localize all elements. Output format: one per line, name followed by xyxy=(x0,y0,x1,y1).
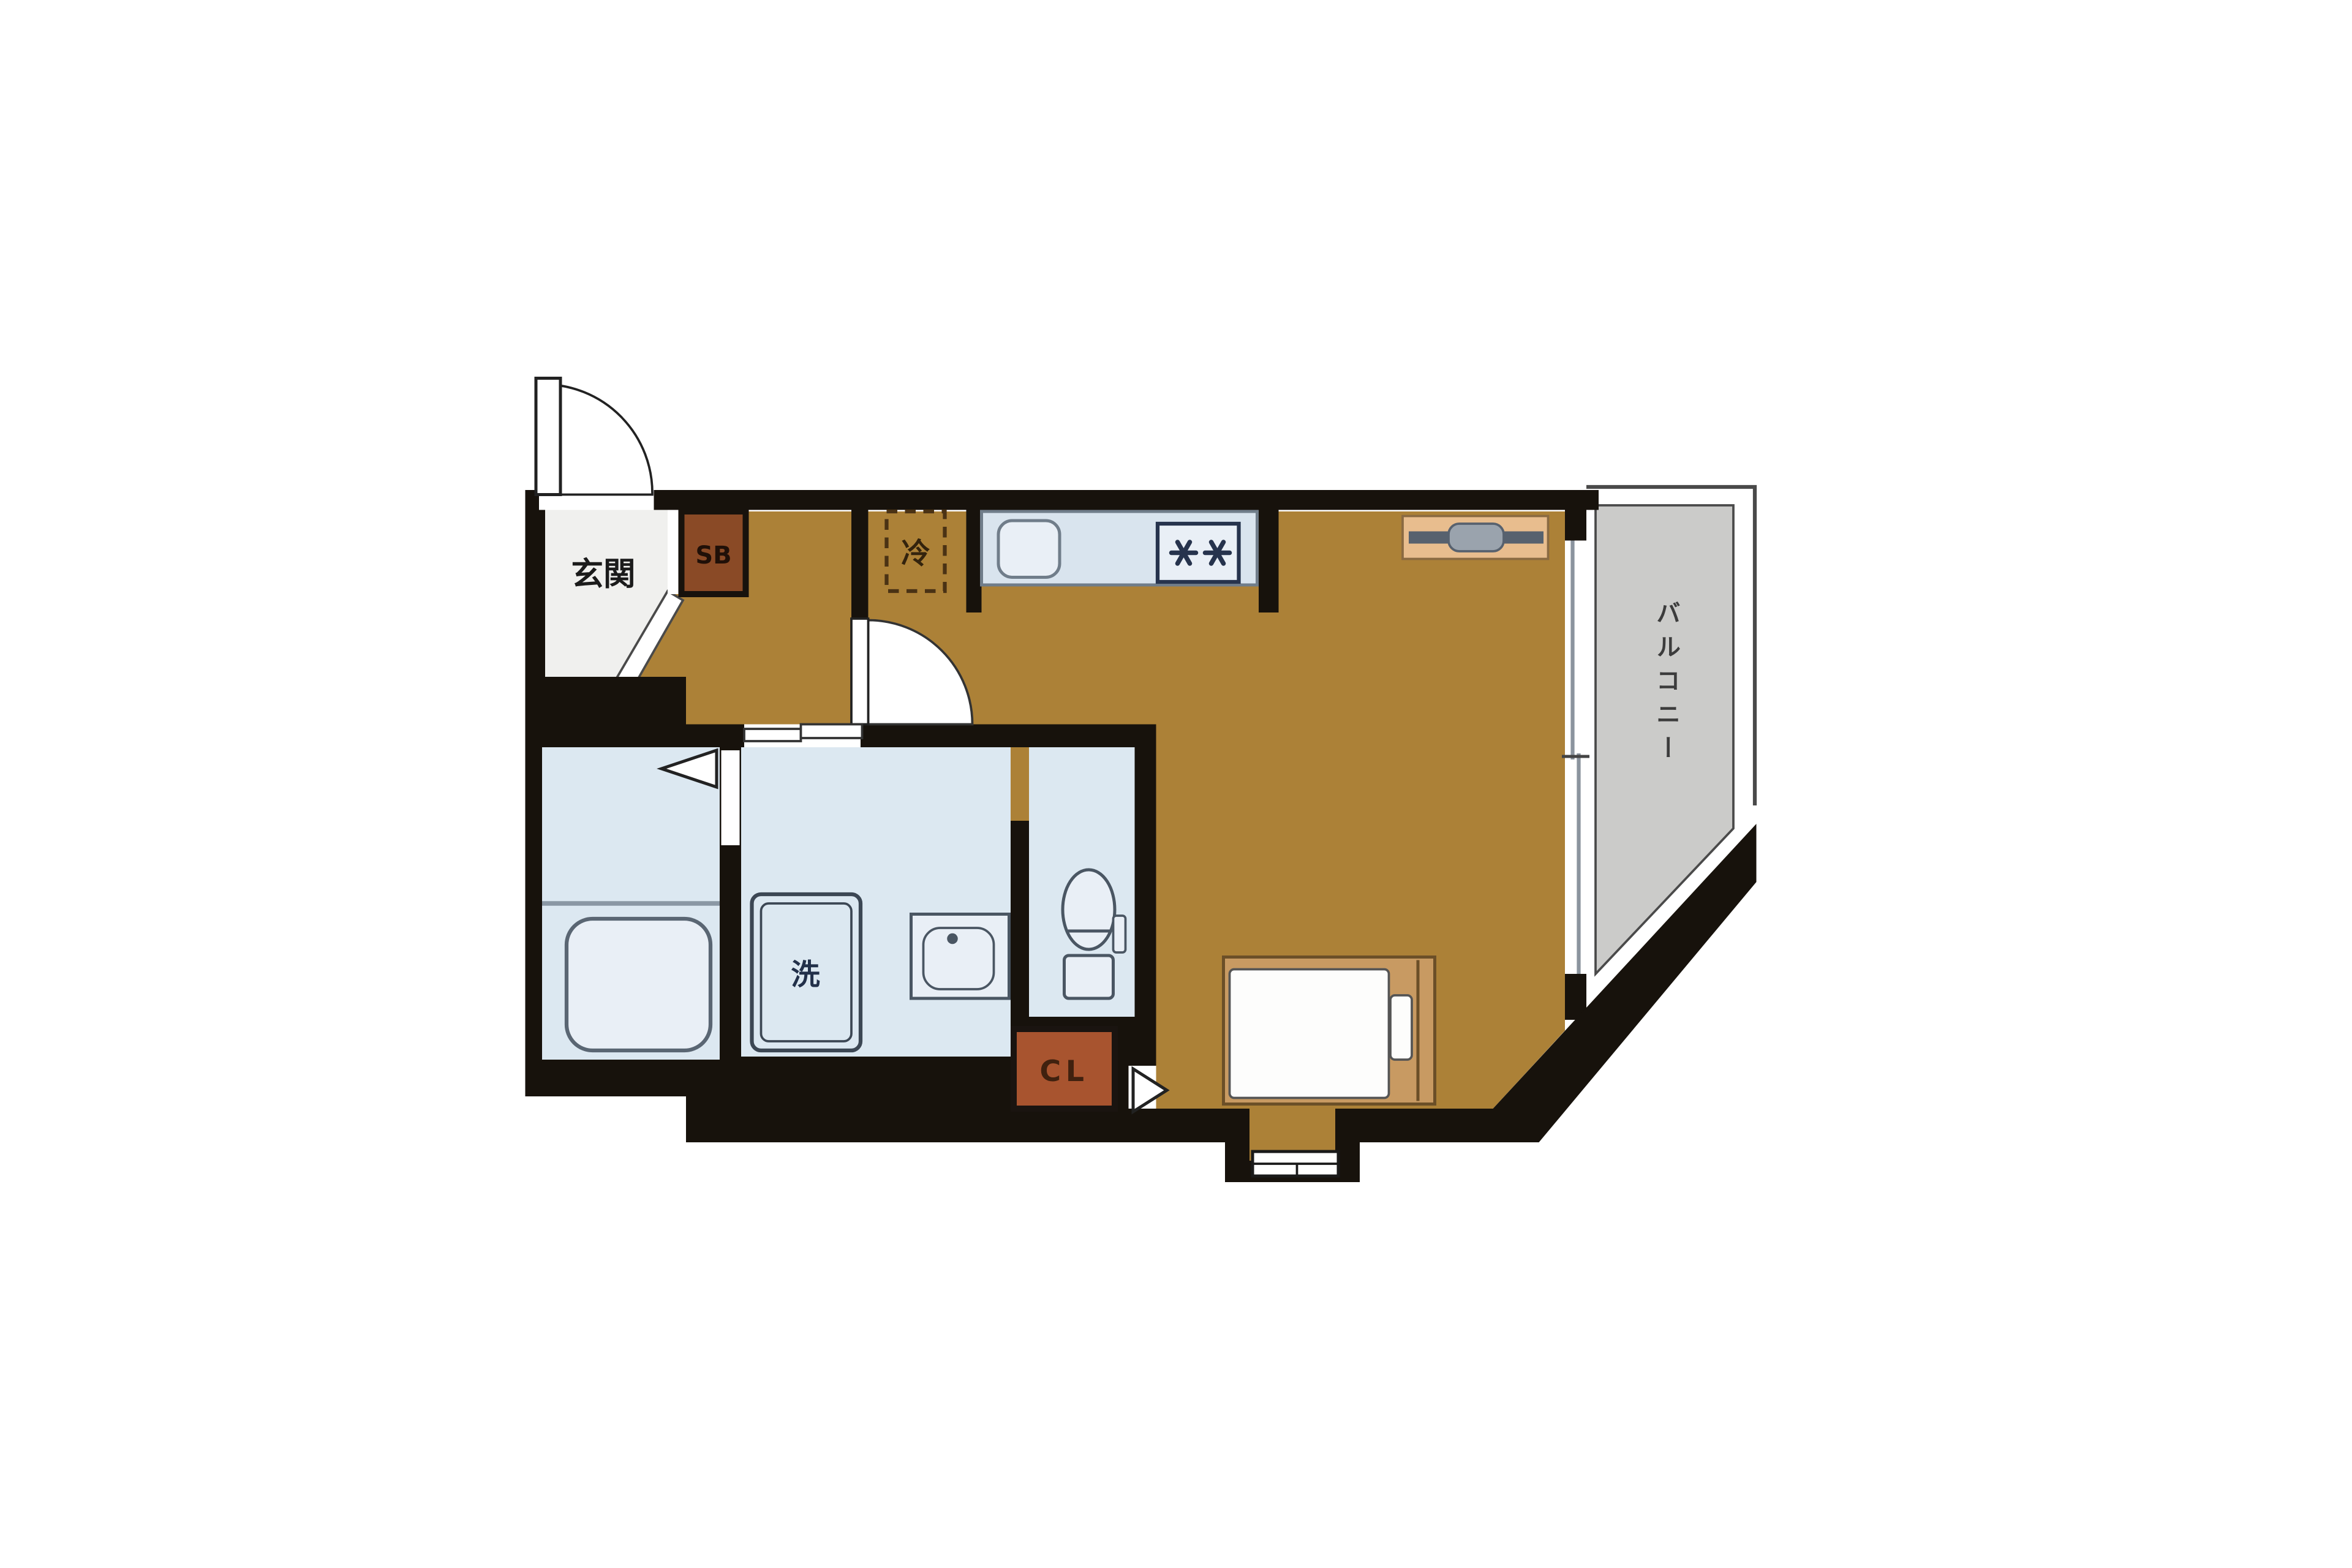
toilet-bowl xyxy=(1063,870,1115,949)
washroom-sliding-door-panel-1 xyxy=(744,729,801,741)
wall-right-top-stub xyxy=(1565,490,1586,541)
bed-mattress xyxy=(1230,970,1389,1098)
wall-toilet-stub xyxy=(1011,821,1029,1017)
wall-bottom-b xyxy=(1360,1109,1513,1142)
bathroom-doorway-gap xyxy=(722,750,740,845)
shoe-box-label: SB xyxy=(695,541,731,570)
wall-fridge-stub xyxy=(967,490,982,612)
toilet-flush-handle xyxy=(1114,916,1126,952)
wall-washroom-top-right xyxy=(861,725,1156,748)
floor-plan-page: バルコニー 玄関 SB 冷 xyxy=(0,0,2352,1568)
washroom-sliding-door-panel-2 xyxy=(801,725,862,739)
refrigerator-label: 冷 xyxy=(901,537,930,571)
bed xyxy=(1224,957,1435,1104)
toilet-tank xyxy=(1065,956,1114,998)
closet-label: CL xyxy=(1039,1055,1088,1088)
bathtub xyxy=(567,919,710,1050)
wall-top xyxy=(526,490,1599,510)
bed-pillow xyxy=(1390,995,1412,1060)
balcony-sliding-window xyxy=(1562,541,1589,974)
wall-bottom-a xyxy=(980,1109,1231,1142)
entrance-label: 玄関 xyxy=(571,556,635,593)
entry-door-leaf xyxy=(536,379,560,495)
kitchen-sink xyxy=(998,521,1060,578)
bay-window xyxy=(1253,1151,1338,1176)
hall-door-leaf xyxy=(851,619,869,725)
wall-hall-door-stub xyxy=(851,490,869,622)
washing-machine-label: 洗 xyxy=(791,959,820,992)
washbasin-faucet xyxy=(947,933,958,944)
wall-lower-mass xyxy=(686,1057,1014,1142)
wall-washroom-top-left xyxy=(616,725,744,748)
desk xyxy=(1403,516,1548,559)
floor-plan-canvas: バルコニー 玄関 SB 冷 xyxy=(0,0,2352,1568)
wall-counter-end-stub xyxy=(1259,490,1279,612)
balcony-label: バルコニー xyxy=(1652,600,1680,769)
desk-handle xyxy=(1449,524,1504,551)
wall-toilet-right xyxy=(1135,747,1156,1017)
